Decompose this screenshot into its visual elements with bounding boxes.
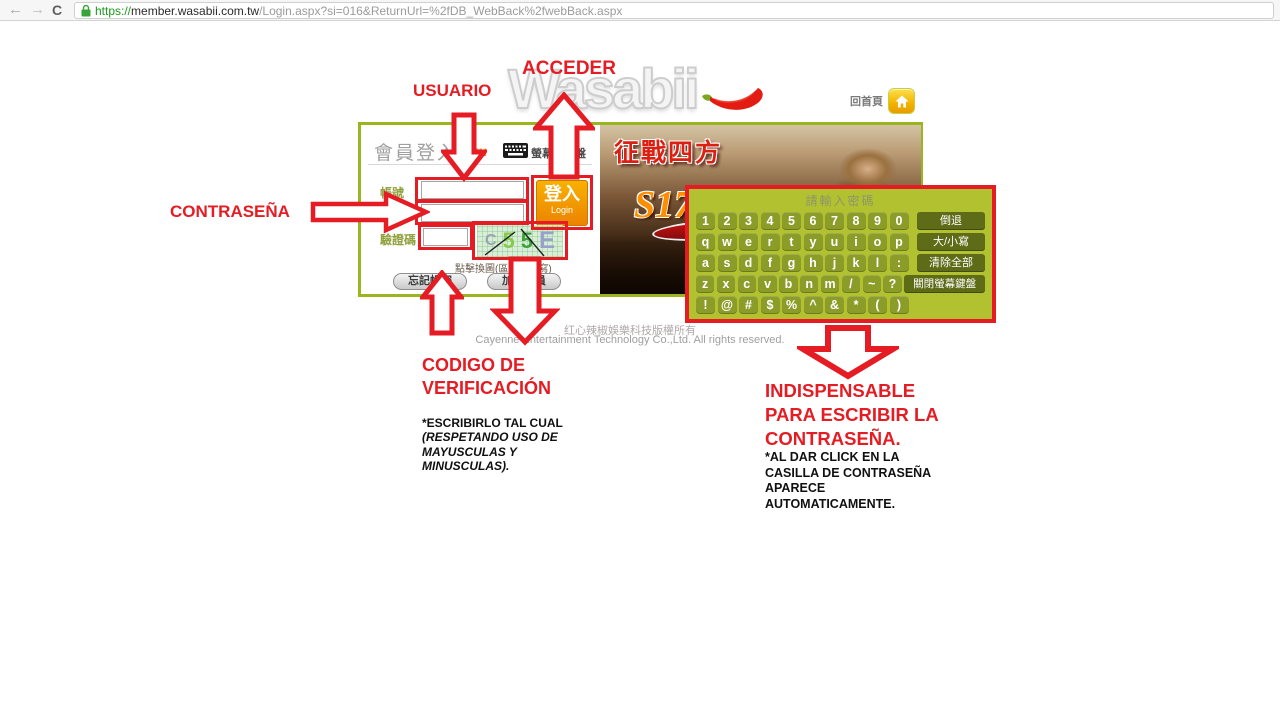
key-4[interactable]: 4 [761, 212, 780, 230]
chili-icon [700, 76, 770, 116]
key-5[interactable]: 5 [782, 212, 801, 230]
key-a[interactable]: a [696, 254, 715, 272]
key-b[interactable]: b [779, 275, 797, 293]
url-path: /Login.aspx?si=016&ReturnUrl=%2fDB_WebBa… [259, 4, 622, 18]
key-r[interactable]: r [761, 233, 780, 251]
captcha-input[interactable] [423, 228, 468, 246]
password-label: 密碼 [380, 207, 404, 224]
key-x[interactable]: x [717, 275, 735, 293]
virtual-keyboard: 請輸入密碼 1234567890倒退qwertyuiop大/小寫asdfghjk… [685, 185, 996, 323]
key-f[interactable]: f [761, 254, 780, 272]
key-*[interactable]: * [847, 296, 866, 314]
captcha-label: 驗證碼 [380, 231, 416, 248]
annotation-usuario: USUARIO [413, 81, 491, 101]
url-bar[interactable]: https://member.wasabii.com.tw/Login.aspx… [74, 2, 1274, 19]
login-title: 會員登入 [374, 138, 458, 165]
key-/[interactable]: / [842, 275, 860, 293]
refresh-button[interactable]: C [52, 0, 62, 20]
key-c[interactable]: c [738, 275, 756, 293]
key-)[interactable]: ) [890, 296, 909, 314]
key-7[interactable]: 7 [825, 212, 844, 230]
key-$[interactable]: $ [761, 296, 780, 314]
key-8[interactable]: 8 [847, 212, 866, 230]
annotation-indispensable-note: *AL DAR CLICK EN LA CASILLA DE CONTRASEÑ… [765, 450, 931, 512]
key-u[interactable]: u [825, 233, 844, 251]
key-s[interactable]: s [718, 254, 737, 272]
url-scheme: https:// [95, 4, 131, 18]
annotation-acceder: ACCEDER [522, 58, 616, 80]
key-p[interactable]: p [890, 233, 909, 251]
key-2[interactable]: 2 [718, 212, 737, 230]
key-6[interactable]: 6 [804, 212, 823, 230]
key-v[interactable]: v [758, 275, 776, 293]
key-d[interactable]: d [739, 254, 758, 272]
key-:[interactable]: : [890, 254, 909, 272]
key-g[interactable]: g [782, 254, 801, 272]
annotation-codigo-note: *ESCRIBIRLO TAL CUAL (RESPETANDO USO DE … [422, 401, 563, 474]
key-%[interactable]: % [782, 296, 801, 314]
key-9[interactable]: 9 [868, 212, 887, 230]
key-w[interactable]: w [718, 233, 737, 251]
key-@[interactable]: @ [718, 296, 737, 314]
key-z[interactable]: z [696, 275, 714, 293]
password-input[interactable] [421, 204, 524, 222]
login-button[interactable]: 登入 Login [536, 180, 588, 226]
login-button-label: 登入 [537, 181, 587, 207]
game-title: 征戰四方 [614, 133, 722, 169]
key-t[interactable]: t [782, 233, 801, 251]
annotation-codigo-title: CODIGO DE VERIFICACIÓN [422, 354, 551, 400]
key-o[interactable]: o [868, 233, 887, 251]
url-host: member.wasabii.com.tw [131, 4, 259, 18]
key-([interactable]: ( [868, 296, 887, 314]
keyboard-prompt: 請輸入密碼 [689, 192, 992, 209]
key-y[interactable]: y [804, 233, 823, 251]
func-key-3[interactable]: 關閉螢幕鍵盤 [904, 275, 985, 293]
captcha-image[interactable]: C55E [477, 225, 563, 257]
browser-toolbar: ← → C https://member.wasabii.com.tw/Logi… [0, 0, 1280, 21]
key-#[interactable]: # [739, 296, 758, 314]
codigo-note-line1: *ESCRIBIRLO TAL CUAL [422, 416, 563, 430]
account-input[interactable] [421, 181, 524, 199]
annotation-contrasena: CONTRASEÑA [170, 202, 290, 222]
key-&[interactable]: & [825, 296, 844, 314]
key-~[interactable]: ~ [863, 275, 881, 293]
forgot-account-button[interactable]: 忘記帳密 [393, 273, 467, 290]
key-0[interactable]: 0 [890, 212, 909, 230]
codigo-note-italic: (RESPETANDO USO DE MAYUSCULAS Y MINUSCUL… [422, 430, 558, 473]
key-m[interactable]: m [821, 275, 839, 293]
keyboard-keys: 1234567890倒退qwertyuiop大/小寫asdfghjkl:清除全部… [696, 212, 985, 317]
home-button[interactable] [888, 88, 915, 114]
forward-button[interactable]: → [30, 0, 45, 20]
key-i[interactable]: i [847, 233, 866, 251]
padlock-icon [81, 4, 91, 17]
join-member-button[interactable]: 加入會員 [487, 273, 561, 290]
key-j[interactable]: j [825, 254, 844, 272]
captcha-noise-lines [477, 225, 563, 257]
footer-english: Cayenne Entertainment Technology Co.,Ltd… [400, 334, 860, 346]
house-icon [894, 94, 910, 109]
func-key-0[interactable]: 倒退 [917, 212, 985, 230]
key-h[interactable]: h [804, 254, 823, 272]
key-q[interactable]: q [696, 233, 715, 251]
key-?[interactable]: ? [883, 275, 901, 293]
func-key-2[interactable]: 清除全部 [917, 254, 985, 272]
screen-keyboard-link[interactable]: 螢幕小鍵盤 [531, 145, 586, 161]
keyboard-icon[interactable] [503, 143, 528, 158]
key-e[interactable]: e [739, 233, 758, 251]
key-3[interactable]: 3 [739, 212, 758, 230]
divider [368, 164, 592, 165]
key-n[interactable]: n [800, 275, 818, 293]
key-1[interactable]: 1 [696, 212, 715, 230]
login-title-en: LOGIN [452, 147, 487, 159]
home-link[interactable]: 回首頁 [850, 93, 883, 109]
page: ← → C https://member.wasabii.com.tw/Logi… [0, 0, 1280, 720]
key-^[interactable]: ^ [804, 296, 823, 314]
func-key-1[interactable]: 大/小寫 [917, 233, 985, 251]
key-![interactable]: ! [696, 296, 715, 314]
back-button[interactable]: ← [8, 0, 23, 20]
key-l[interactable]: l [868, 254, 887, 272]
key-k[interactable]: k [847, 254, 866, 272]
annotation-indispensable-title: INDISPENSABLE PARA ESCRIBIR LA CONTRASEÑ… [765, 379, 939, 451]
account-label: 帳號 [380, 184, 404, 201]
